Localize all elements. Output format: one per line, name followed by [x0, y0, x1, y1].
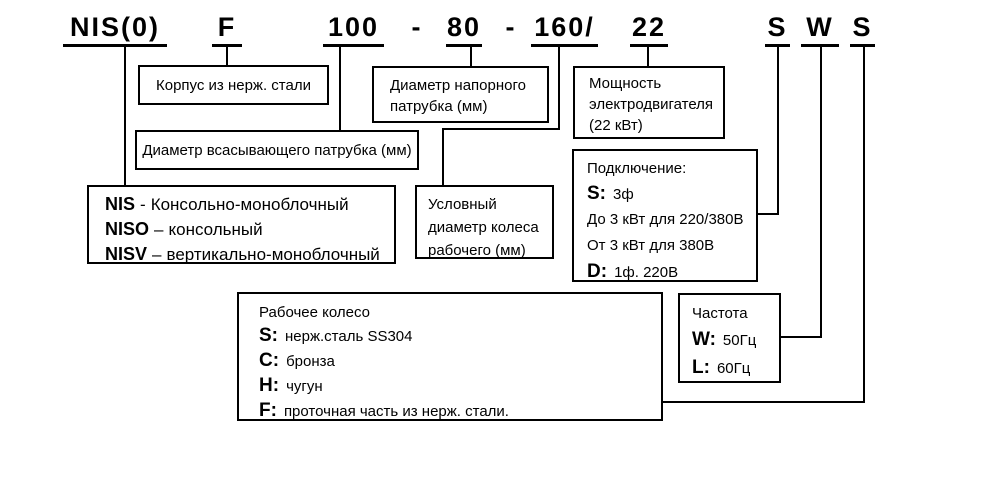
connection-box-title: Подключение:	[587, 157, 756, 181]
connector-frequency	[780, 336, 822, 338]
series-option-code: NIS	[105, 194, 135, 214]
motor-power-line: электродвигателя	[589, 94, 723, 115]
code-impeller-diameter-value: 160	[534, 12, 585, 42]
series-option-code: NISO	[105, 219, 149, 239]
code-casing: F	[212, 12, 242, 47]
series-option-sep: –	[152, 245, 161, 264]
pump-nomenclature-diagram: NIS(0) F 100 - 80 - 160/ 22 S W S Корпус…	[0, 0, 988, 480]
code-slash: /	[585, 12, 595, 42]
casing-box-label: Корпус из нерж. стали	[156, 77, 311, 94]
impeller-diameter-line: Условный	[428, 193, 552, 216]
series-option-label: консольный	[168, 220, 262, 239]
connection-note-text: От 3 кВт для 380В	[587, 237, 714, 254]
code-discharge-diameter: 80	[446, 12, 482, 47]
series-option: NIS-Консольно-моноблочный	[105, 192, 394, 217]
impeller-material-option: C:бронза	[259, 349, 661, 374]
series-option-code: NISV	[105, 244, 147, 264]
series-option-label: вертикально-моноблочный	[166, 245, 379, 264]
impeller-diameter-line: диаметр колеса	[428, 216, 552, 239]
frequency-box-title: Частота	[692, 301, 779, 326]
connection-option-label: 3ф	[613, 186, 634, 203]
impeller-material-code: C:	[259, 350, 279, 371]
code-frequency: W	[801, 12, 839, 47]
series-option-label: Консольно-моноблочный	[151, 195, 349, 214]
connection-box: Подключение: S:3ф До 3 кВт для 220/380В …	[572, 149, 758, 282]
connector-discharge	[470, 44, 472, 68]
connector-frequency	[820, 44, 822, 338]
connection-note-text: До 3 кВт для 220/380В	[587, 211, 743, 228]
code-power: 22	[630, 12, 668, 47]
connection-option-label: 1ф. 220В	[614, 264, 678, 281]
code-impeller-diameter: 160/	[531, 12, 598, 47]
connector-power	[647, 44, 649, 68]
connection-option-code: D:	[587, 261, 607, 282]
frequency-option-code: L:	[692, 357, 710, 378]
connector-casing	[226, 44, 228, 67]
code-impeller-material: S	[850, 12, 875, 47]
code-separator: -	[406, 12, 426, 44]
impeller-material-code: S:	[259, 325, 278, 346]
code-separator: -	[500, 12, 520, 44]
impeller-diameter-line: рабочего (мм)	[428, 239, 552, 262]
connector-impeller-diameter	[558, 44, 560, 130]
connection-option: D:1ф. 220В	[587, 259, 756, 285]
impeller-material-code: F:	[259, 400, 277, 421]
motor-power-line: Мощность	[589, 73, 723, 94]
series-option: NISV–вертикально-моноблочный	[105, 242, 394, 267]
connection-option: S:3ф	[587, 181, 756, 207]
series-box: NIS-Консольно-моноблочный NISO–консольны…	[87, 185, 396, 264]
impeller-material-option: S:нерж.сталь SS304	[259, 324, 661, 349]
frequency-option: W:50Гц	[692, 326, 779, 354]
code-connection: S	[765, 12, 790, 47]
impeller-material-code: H:	[259, 375, 279, 396]
discharge-diameter-box: Диаметр напорного патрубка (мм)	[372, 66, 549, 123]
impeller-material-label: бронза	[286, 353, 335, 370]
connection-note: От 3 кВт для 380В	[587, 233, 756, 259]
casing-box: Корпус из нерж. стали	[138, 65, 329, 105]
motor-power-box: Мощность электродвигателя (22 кВт)	[573, 66, 725, 139]
connector-connection	[777, 44, 779, 215]
impeller-material-box-title: Рабочее колесо	[259, 301, 661, 324]
discharge-diameter-line: патрубка (мм)	[390, 96, 547, 117]
series-option-sep: –	[154, 220, 163, 239]
motor-power-line: (22 кВт)	[589, 115, 723, 136]
code-series: NIS(0)	[63, 12, 167, 47]
impeller-material-label: нерж.сталь SS304	[285, 328, 413, 345]
frequency-option: L:60Гц	[692, 354, 779, 382]
code-suction-diameter: 100	[323, 12, 384, 47]
impeller-diameter-box: Условный диаметр колеса рабочего (мм)	[415, 185, 554, 259]
connector-series	[124, 44, 126, 186]
suction-diameter-box-label: Диаметр всасывающего патрубка (мм)	[142, 142, 411, 159]
impeller-material-option: F:проточная часть из нерж. стали.	[259, 399, 661, 424]
connector-impeller-diameter	[442, 128, 560, 130]
frequency-option-label: 50Гц	[723, 332, 756, 349]
impeller-material-option: H:чугун	[259, 374, 661, 399]
impeller-material-box: Рабочее колесо S:нерж.сталь SS304 C:брон…	[237, 292, 663, 421]
connector-impeller-diameter	[442, 128, 444, 186]
connector-connection	[757, 213, 779, 215]
connection-option-code: S:	[587, 183, 606, 204]
frequency-option-code: W:	[692, 329, 716, 350]
connection-note: До 3 кВт для 220/380В	[587, 207, 756, 233]
connector-impeller-material	[662, 401, 865, 403]
frequency-box: Частота W:50Гц L:60Гц	[678, 293, 781, 383]
impeller-material-label: проточная часть из нерж. стали.	[284, 403, 509, 420]
suction-diameter-box: Диаметр всасывающего патрубка (мм)	[135, 130, 419, 170]
connector-impeller-material	[863, 44, 865, 403]
frequency-option-label: 60Гц	[717, 360, 750, 377]
connector-suction	[339, 44, 341, 132]
series-option-sep: -	[140, 195, 146, 214]
series-option: NISO–консольный	[105, 217, 394, 242]
impeller-material-label: чугун	[286, 378, 323, 395]
discharge-diameter-line: Диаметр напорного	[390, 75, 547, 96]
